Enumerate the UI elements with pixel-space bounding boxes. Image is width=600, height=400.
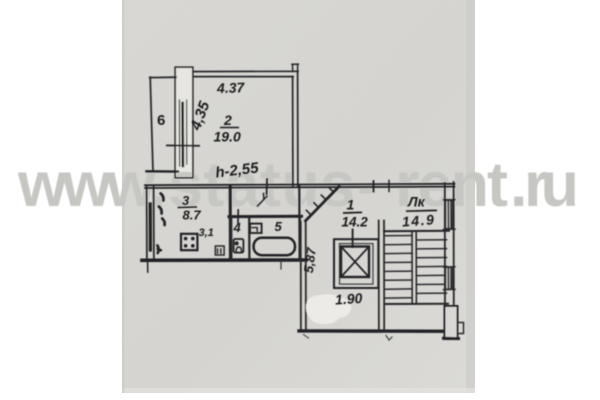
svg-text:4.37: 4.37 (216, 79, 246, 96)
svg-text:1.90: 1.90 (335, 290, 364, 308)
svg-text:3,1: 3,1 (199, 227, 214, 239)
svg-text:5: 5 (275, 219, 283, 234)
svg-text:5,87: 5,87 (301, 246, 319, 274)
svg-text:6: 6 (157, 112, 165, 129)
svg-text:4: 4 (233, 220, 242, 235)
svg-text:2: 2 (223, 112, 232, 128)
svg-text:19.0: 19.0 (214, 129, 241, 145)
svg-text:www.status-rent.ru: www.status-rent.ru (17, 150, 579, 220)
